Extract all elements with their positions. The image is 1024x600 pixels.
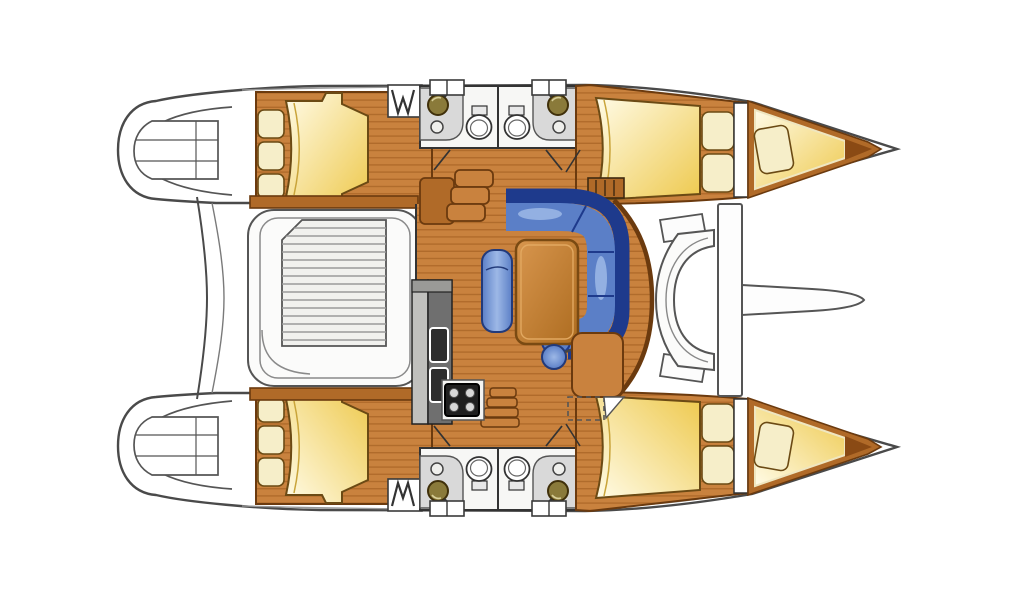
cockpit-table-slats — [282, 220, 386, 346]
burner — [466, 403, 475, 412]
bridgedeck — [197, 170, 864, 427]
burner — [466, 389, 475, 398]
toilet-tank — [509, 106, 524, 115]
fridge-handle — [430, 328, 448, 362]
sink-ring — [431, 121, 443, 133]
bed-pillow — [258, 174, 284, 198]
burner — [450, 389, 459, 398]
burner — [450, 403, 459, 412]
bed-pillow — [258, 142, 284, 170]
bowsprit-pole — [742, 285, 864, 315]
bow-bulkhead — [734, 103, 748, 197]
stool — [542, 345, 566, 369]
transom-steps — [134, 121, 218, 179]
cabin-wall-band — [250, 196, 418, 208]
nav-cabinet — [572, 333, 623, 397]
berth-pillow — [702, 154, 734, 192]
aft-deck-edge — [197, 197, 207, 399]
catamaran-floor-plan — [0, 0, 1024, 600]
bowsprit-crossbeam — [718, 204, 742, 396]
toilet-tank — [472, 106, 487, 115]
cabin-wall-band — [250, 388, 418, 400]
galley-counter-top — [412, 280, 452, 292]
aft-deck-edge-inner — [212, 203, 224, 393]
lounge-chair — [482, 250, 512, 332]
coffee-table — [516, 240, 578, 344]
sofa-highlight — [595, 256, 607, 300]
sofa-highlight — [518, 208, 562, 220]
berth-pillow — [702, 112, 734, 150]
forepeak-pillow — [753, 124, 794, 174]
floor-plan-canvas — [0, 0, 1024, 600]
sink-ring — [553, 121, 565, 133]
bed-pillow — [258, 110, 284, 138]
stove — [445, 384, 479, 416]
